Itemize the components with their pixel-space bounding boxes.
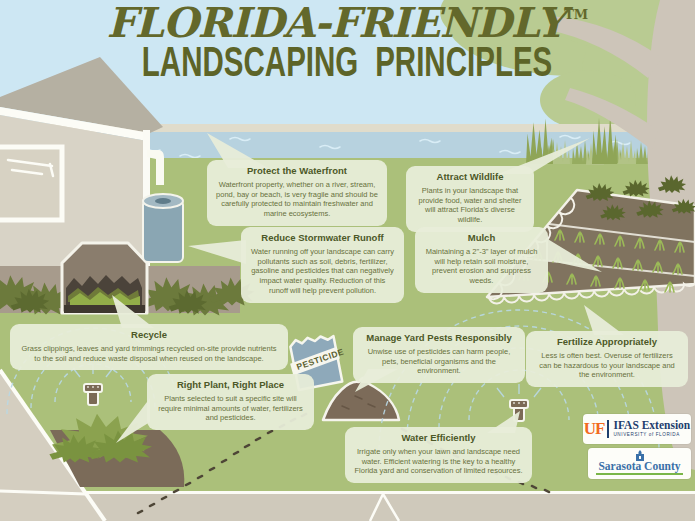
callout-water-efficiently: Water Efficiently Irrigate only when you…: [345, 427, 532, 483]
callout-title: Reduce Stormwater Runoff: [250, 233, 395, 244]
callout-reduce-stormwater-runoff: Reduce Stormwater Runoff Water running o…: [241, 227, 404, 303]
callout-body: Waterfront property, whether on a river,…: [216, 180, 378, 219]
rain-barrel: [143, 194, 183, 262]
florida-friendly-landscaping-poster: PESTICIDE: [0, 0, 695, 521]
callout-body: Irrigate only when your lawn and landsca…: [354, 447, 523, 476]
uf-logo-subtitle: UNIVERSITY of FLORIDA: [613, 433, 690, 438]
callout-title: Attract Wildlife: [415, 172, 525, 183]
callout-title: Mulch: [424, 233, 539, 244]
callout-recycle: Recycle Grass clippings, leaves and yard…: [10, 324, 288, 370]
callout-manage-yard-pests: Manage Yard Pests Responsibly Unwise use…: [353, 327, 525, 383]
callout-body: Maintaining a 2"-3" layer of mulch will …: [424, 247, 539, 286]
callout-body: Unwise use of pesticides can harm people…: [362, 347, 516, 376]
callout-body: Plants in your landscape that provide fo…: [415, 186, 525, 225]
callout-title: Recycle: [19, 330, 279, 341]
callout-title: Manage Yard Pests Responsibly: [362, 333, 516, 344]
compost-bin: [62, 243, 147, 313]
callout-title: Water Efficiently: [354, 433, 523, 444]
uf-ifas-extension-logo: UF IFAS Extension UNIVERSITY of FLORIDA: [583, 414, 691, 444]
callout-attract-wildlife: Attract Wildlife Plants in your landscap…: [406, 166, 534, 232]
callout-right-plant-right-place: Right Plant, Right Place Plants selected…: [147, 374, 314, 430]
callout-protect-waterfront: Protect the Waterfront Waterfront proper…: [207, 160, 387, 226]
callout-title: Protect the Waterfront: [216, 166, 378, 177]
callout-body: Plants selected to suit a specific site …: [156, 394, 305, 423]
callout-body: Water running off your landscape can car…: [250, 247, 395, 296]
window: [0, 147, 62, 220]
callout-mulch: Mulch Maintaining a 2"-3" layer of mulch…: [415, 227, 548, 293]
callout-body: Grass clippings, leaves and yard trimmin…: [19, 344, 279, 364]
callout-fertilize-appropriately: Fertilize Appropriately Less is often be…: [526, 331, 688, 387]
uf-logo-name: IFAS Extension: [613, 420, 690, 432]
county-logo-name: Sarasota County: [596, 460, 682, 475]
uf-logo-abbr: UF: [584, 419, 605, 439]
callout-title: Fertilize Appropriately: [535, 337, 679, 348]
uf-logo-divider: [607, 420, 609, 438]
callout-body: Less is often best. Overuse of fertilize…: [535, 351, 679, 380]
callout-title: Right Plant, Right Place: [156, 380, 305, 391]
sarasota-county-logo: Sarasota County: [588, 448, 691, 479]
